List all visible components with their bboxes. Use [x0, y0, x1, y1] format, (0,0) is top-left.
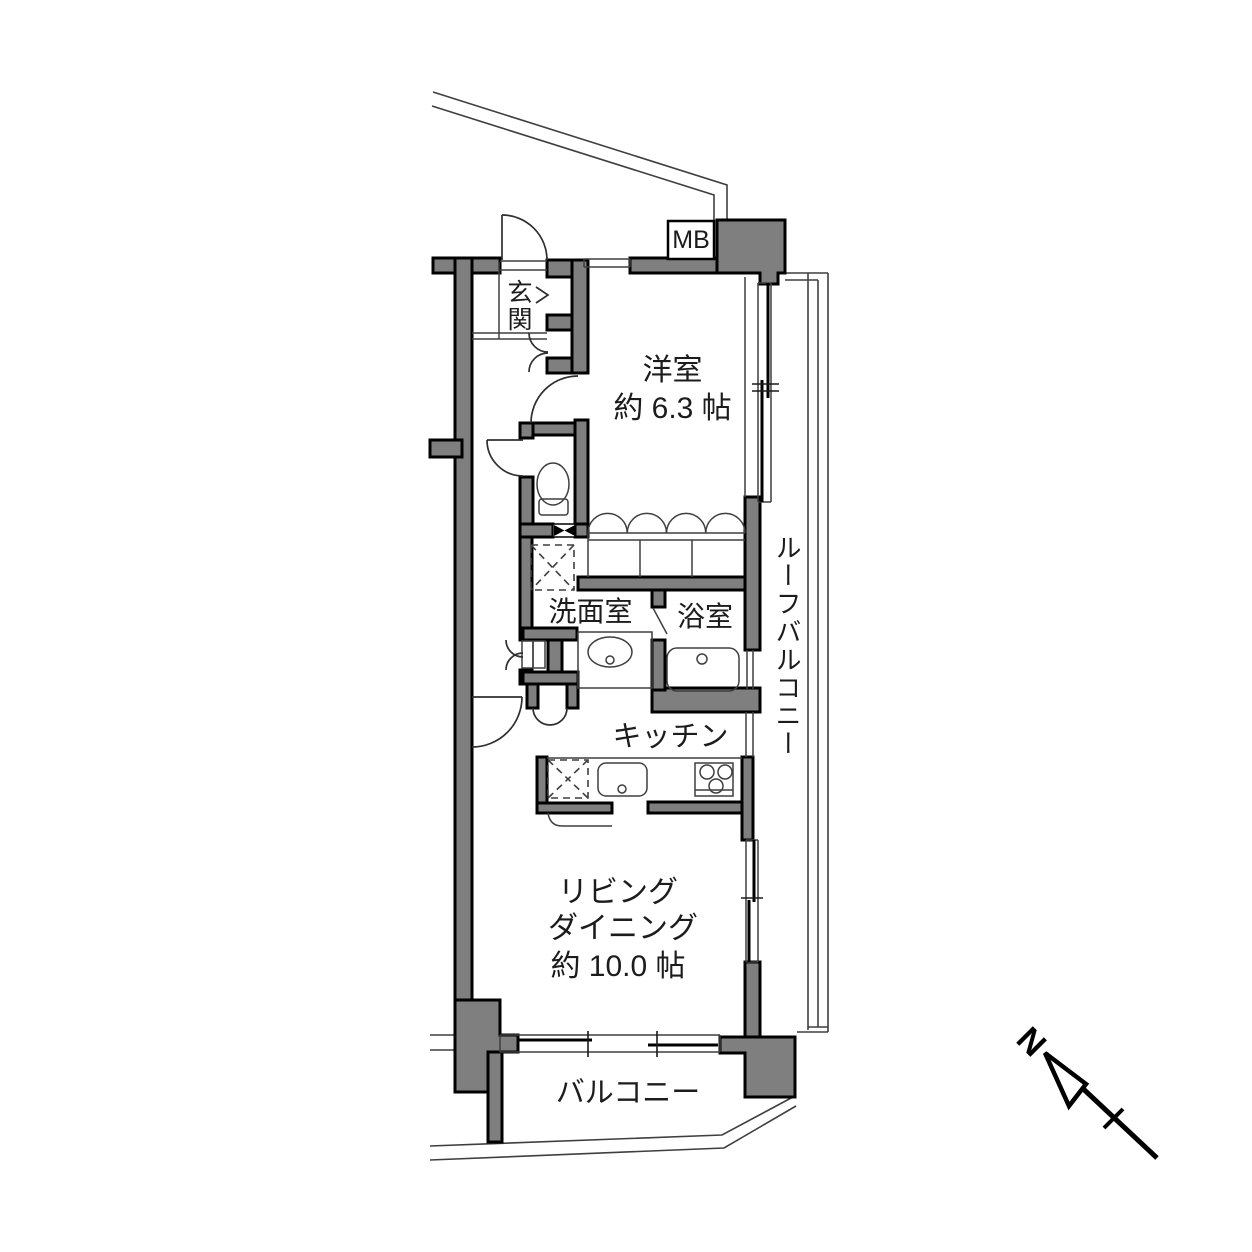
vent [553, 524, 575, 537]
wall-segment [430, 440, 462, 457]
closet-shelf-lines [588, 533, 745, 577]
closet-door-arc [627, 513, 666, 533]
wall-segment [652, 640, 665, 690]
wall-segment [527, 684, 538, 708]
western-room-door-arc [531, 376, 578, 423]
western-room-size: 約 6.3 帖 [585, 392, 760, 427]
washroom-label: 洗面室 [538, 596, 643, 628]
wall-segment [567, 684, 578, 708]
boundary-line [433, 92, 727, 220]
bathroom-label: 浴室 [666, 601, 744, 633]
wall-pillar [720, 1037, 795, 1097]
kitchen-counter-edge [548, 813, 612, 826]
meter-box-label: MB [668, 226, 714, 255]
closet-door-arc [667, 513, 706, 533]
wall-segment [455, 258, 472, 1003]
wall-segment [488, 1052, 502, 1142]
boundary-line [432, 106, 714, 220]
fixed-window [584, 259, 630, 267]
wall-segment [742, 757, 753, 840]
wall-segment [523, 628, 577, 640]
wall-pillar [717, 220, 785, 284]
stove-burner [718, 765, 732, 779]
washbasin-drain [606, 656, 614, 664]
wall-segment [575, 524, 588, 537]
door-panel [533, 641, 545, 668]
washing-machine-space-cross [531, 545, 574, 590]
floor-plan: N MB 玄関 洋室 約 6.3 帖 ルーフバルコニー 洗面室 浴室 キッチン … [0, 0, 1252, 1252]
kitchen-sink-icon [598, 763, 647, 796]
entrance-step-arrow-icon [536, 287, 548, 303]
entrance-door-arc [502, 215, 547, 260]
north-arrow-head-icon [1045, 1053, 1086, 1106]
wall-segment [520, 524, 553, 537]
living-door-arc [472, 697, 522, 747]
living-dining-size: 約 10.0 帖 [538, 950, 698, 985]
roof-balcony-label: ルーフバルコニー [769, 534, 806, 779]
bathtub-faucet [697, 654, 707, 664]
wall-segment [547, 260, 572, 277]
hall-closet-bifold-arc [529, 353, 548, 372]
living-dining-label-line2: ダイニング [548, 912, 688, 947]
living-dining-label-line1: リビング [553, 876, 683, 911]
wall-segment [575, 420, 588, 537]
compass: N [1009, 1020, 1157, 1158]
western-room-label: 洋室 [595, 354, 750, 389]
storage-bifold-arc [533, 708, 550, 725]
balcony-label: バルコニー [548, 1077, 708, 1110]
washroom-bifold-arc [506, 653, 523, 670]
bathroom-window [747, 650, 753, 690]
closet-door-arc [706, 513, 745, 533]
kitchen-window [746, 712, 753, 757]
kitchen-sink-drain [618, 785, 626, 793]
stove-burner [709, 779, 723, 793]
wall-segment [648, 802, 753, 813]
wall-segment [652, 590, 665, 607]
bath-folding-door [653, 608, 667, 634]
wall-segment [547, 358, 572, 373]
stove-burner [700, 765, 714, 779]
toilet-door-arc [487, 440, 523, 476]
entrance-label: 玄関 [505, 280, 535, 333]
refrigerator-space-cross [548, 760, 588, 798]
wall-segment [572, 260, 588, 373]
wall-segment [547, 315, 572, 330]
washroom-counter [578, 632, 652, 688]
wall-segment [523, 672, 578, 684]
washbasin-icon [588, 637, 632, 667]
wall-segment [537, 803, 612, 813]
door-panel [522, 641, 533, 668]
closet-door-arc [588, 513, 627, 533]
wall-segment [520, 423, 533, 438]
wall-segment [548, 640, 562, 673]
hall-closet-bifold-arc [529, 333, 548, 352]
balcony-edge-line [430, 1106, 796, 1160]
wall-segment [578, 577, 760, 590]
storage-bifold-arc [550, 708, 567, 725]
wall-segment [745, 497, 760, 650]
wall-segment [745, 962, 760, 1039]
kitchen-label: キッチン [608, 721, 733, 754]
